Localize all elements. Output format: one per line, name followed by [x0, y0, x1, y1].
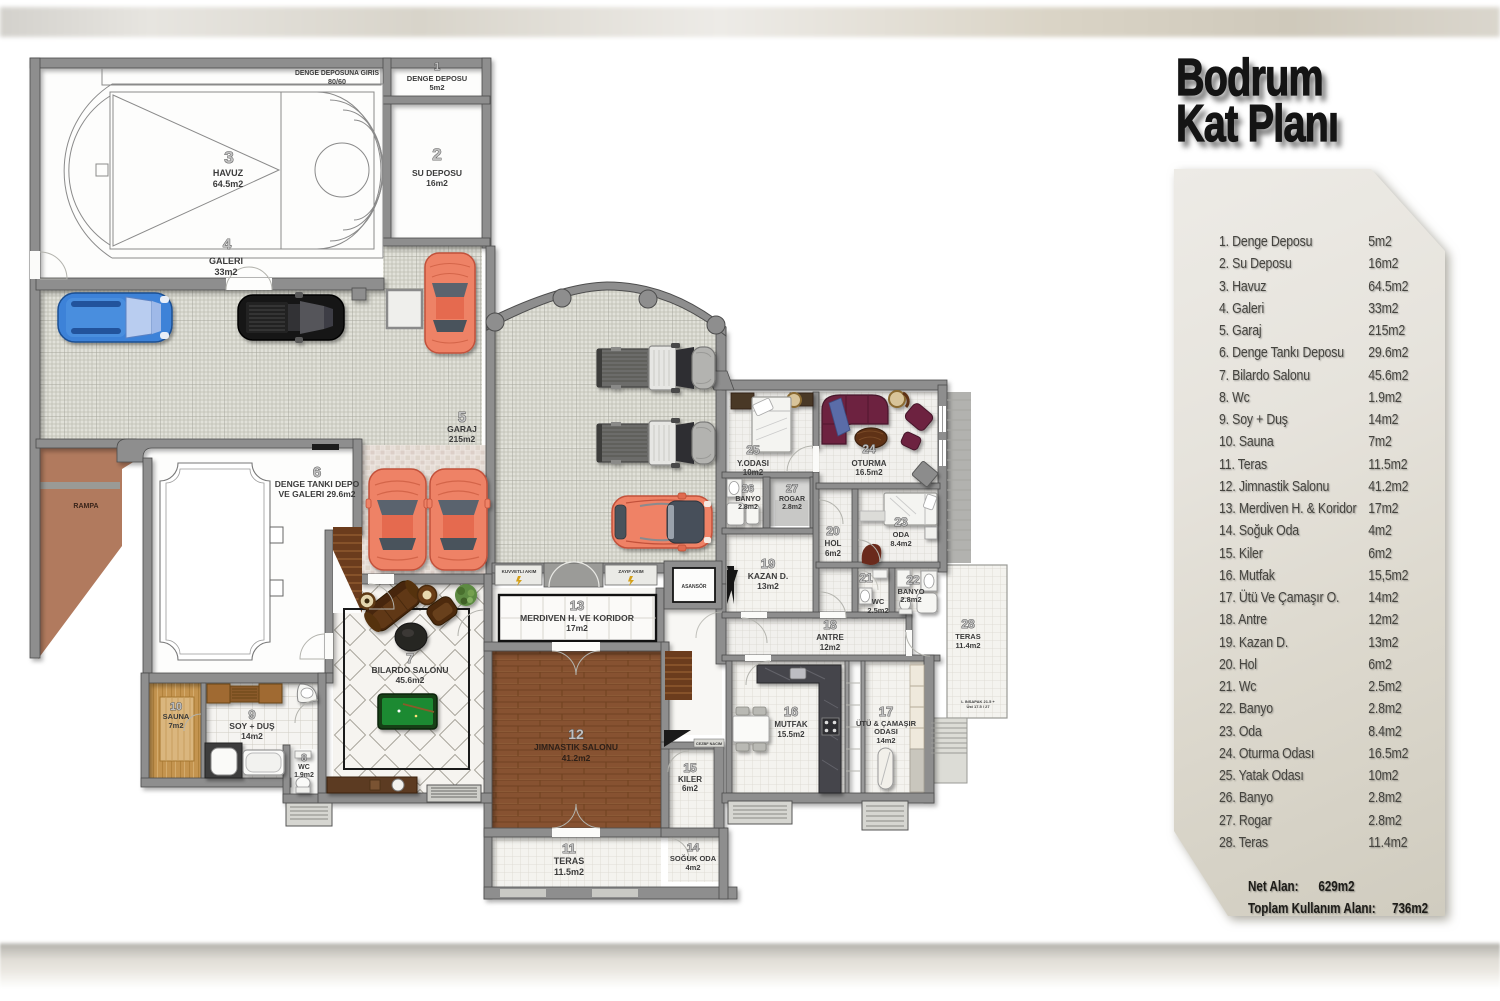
svg-text:45.6m2: 45.6m2: [396, 675, 425, 685]
svg-text:4m2: 4m2: [685, 863, 700, 872]
svg-text:1.9m2: 1.9m2: [294, 772, 314, 779]
svg-text:ROGAR: ROGAR: [779, 496, 805, 503]
svg-text:33m2: 33m2: [214, 267, 237, 277]
svg-text:BANYO: BANYO: [735, 496, 761, 503]
svg-text:2: 2: [432, 145, 441, 164]
svg-text:KILER: KILER: [678, 775, 702, 784]
svg-text:ODASI: ODASI: [874, 727, 898, 736]
svg-text:19: 19: [761, 556, 775, 571]
svg-text:16m2: 16m2: [426, 178, 448, 188]
svg-text:TERAS: TERAS: [955, 632, 980, 641]
svg-text:17m2: 17m2: [566, 623, 588, 633]
svg-text:11.4m2: 11.4m2: [955, 641, 980, 650]
svg-text:BILARDO SALONU: BILARDO SALONU: [372, 665, 449, 675]
svg-text:Y.ODASI: Y.ODASI: [737, 459, 769, 468]
svg-text:1: 1: [434, 61, 440, 73]
svg-text:28: 28: [961, 617, 975, 631]
svg-text:2.5m2: 2.5m2: [867, 606, 888, 615]
svg-text:2.8m2: 2.8m2: [900, 595, 921, 604]
svg-text:Üst 17.5 / 27: Üst 17.5 / 27: [966, 704, 990, 709]
svg-text:RAMPA: RAMPA: [73, 503, 98, 510]
svg-text:15.5m2: 15.5m2: [777, 730, 805, 739]
svg-text:10m2: 10m2: [743, 468, 764, 477]
svg-text:OTURMA: OTURMA: [851, 459, 886, 468]
svg-text:8.4m2: 8.4m2: [890, 539, 911, 548]
svg-text:12: 12: [568, 726, 584, 742]
svg-text:ZAYIF AKIM: ZAYIF AKIM: [618, 569, 643, 574]
svg-text:WC: WC: [872, 597, 885, 606]
svg-text:7m2: 7m2: [168, 721, 183, 730]
svg-text:SAUNA: SAUNA: [163, 712, 190, 721]
svg-text:MERDIVEN H. VE KORIDOR: MERDIVEN H. VE KORIDOR: [520, 614, 634, 623]
svg-text:6m2: 6m2: [682, 784, 699, 793]
svg-text:4: 4: [223, 236, 232, 253]
svg-text:12m2: 12m2: [820, 643, 841, 652]
svg-text:SOĞUK ODA: SOĞUK ODA: [670, 854, 717, 863]
svg-text:22: 22: [906, 573, 920, 587]
svg-text:7: 7: [406, 650, 414, 666]
svg-text:25: 25: [746, 443, 760, 457]
svg-text:GALERI: GALERI: [209, 256, 243, 266]
svg-text:15: 15: [683, 761, 697, 775]
svg-text:215m2: 215m2: [449, 434, 476, 444]
svg-text:2.8m2: 2.8m2: [738, 504, 758, 511]
svg-text:64.5m2: 64.5m2: [213, 179, 244, 189]
svg-text:24: 24: [862, 442, 876, 456]
svg-text:11: 11: [562, 841, 576, 856]
svg-text:ASANSÖR: ASANSÖR: [681, 583, 706, 590]
svg-text:16.5m2: 16.5m2: [855, 468, 883, 477]
svg-text:11.5m2: 11.5m2: [554, 867, 584, 877]
svg-text:14: 14: [687, 842, 700, 854]
svg-text:5m2: 5m2: [429, 83, 444, 92]
svg-text:ODA: ODA: [893, 530, 910, 539]
svg-text:18: 18: [823, 618, 837, 632]
svg-text:26: 26: [742, 483, 754, 495]
svg-text:SU DEPOSU: SU DEPOSU: [412, 168, 462, 178]
svg-text:VE GALERI 29.6m2: VE GALERI 29.6m2: [278, 489, 355, 499]
svg-text:14m2: 14m2: [876, 736, 895, 745]
svg-text:CEZBF NACIM: CEZBF NACIM: [696, 742, 722, 746]
svg-text:HAVUZ: HAVUZ: [213, 168, 244, 178]
svg-text:13m2: 13m2: [757, 581, 779, 591]
svg-text:TERAS: TERAS: [554, 856, 585, 866]
svg-text:DENGE TANKI DEPO: DENGE TANKI DEPO: [275, 479, 360, 489]
svg-text:16: 16: [784, 704, 798, 719]
svg-text:GARAJ: GARAJ: [447, 424, 477, 434]
svg-text:3: 3: [224, 148, 233, 167]
svg-text:20: 20: [826, 524, 840, 538]
svg-text:6m2: 6m2: [825, 549, 842, 558]
svg-text:MUTFAK: MUTFAK: [774, 720, 808, 729]
svg-text:80/60: 80/60: [328, 77, 346, 86]
svg-text:JIMNASTIK SALONU: JIMNASTIK SALONU: [534, 742, 618, 752]
svg-text:23: 23: [894, 515, 908, 529]
svg-text:2.8m2: 2.8m2: [782, 504, 802, 511]
svg-text:21: 21: [859, 571, 873, 585]
svg-text:9: 9: [248, 707, 255, 722]
svg-text:41.2m2: 41.2m2: [562, 753, 591, 763]
svg-text:SOY + DUŞ: SOY + DUŞ: [229, 721, 275, 731]
svg-text:8: 8: [301, 753, 307, 764]
svg-text:17: 17: [879, 704, 893, 719]
svg-text:DENGE DEPOSUNA GIRIS: DENGE DEPOSUNA GIRIS: [295, 68, 379, 77]
svg-text:KUVVETLI AKIM: KUVVETLI AKIM: [502, 569, 537, 574]
svg-text:HOL: HOL: [825, 539, 842, 548]
svg-text:KAZAN D.: KAZAN D.: [748, 571, 789, 581]
svg-text:14m2: 14m2: [241, 731, 263, 741]
svg-text:13: 13: [570, 598, 584, 613]
svg-text:ANTRE: ANTRE: [816, 633, 844, 642]
svg-text:WC: WC: [298, 764, 310, 771]
svg-text:DENGE DEPOSU: DENGE DEPOSU: [407, 74, 467, 83]
svg-text:27: 27: [786, 483, 798, 495]
